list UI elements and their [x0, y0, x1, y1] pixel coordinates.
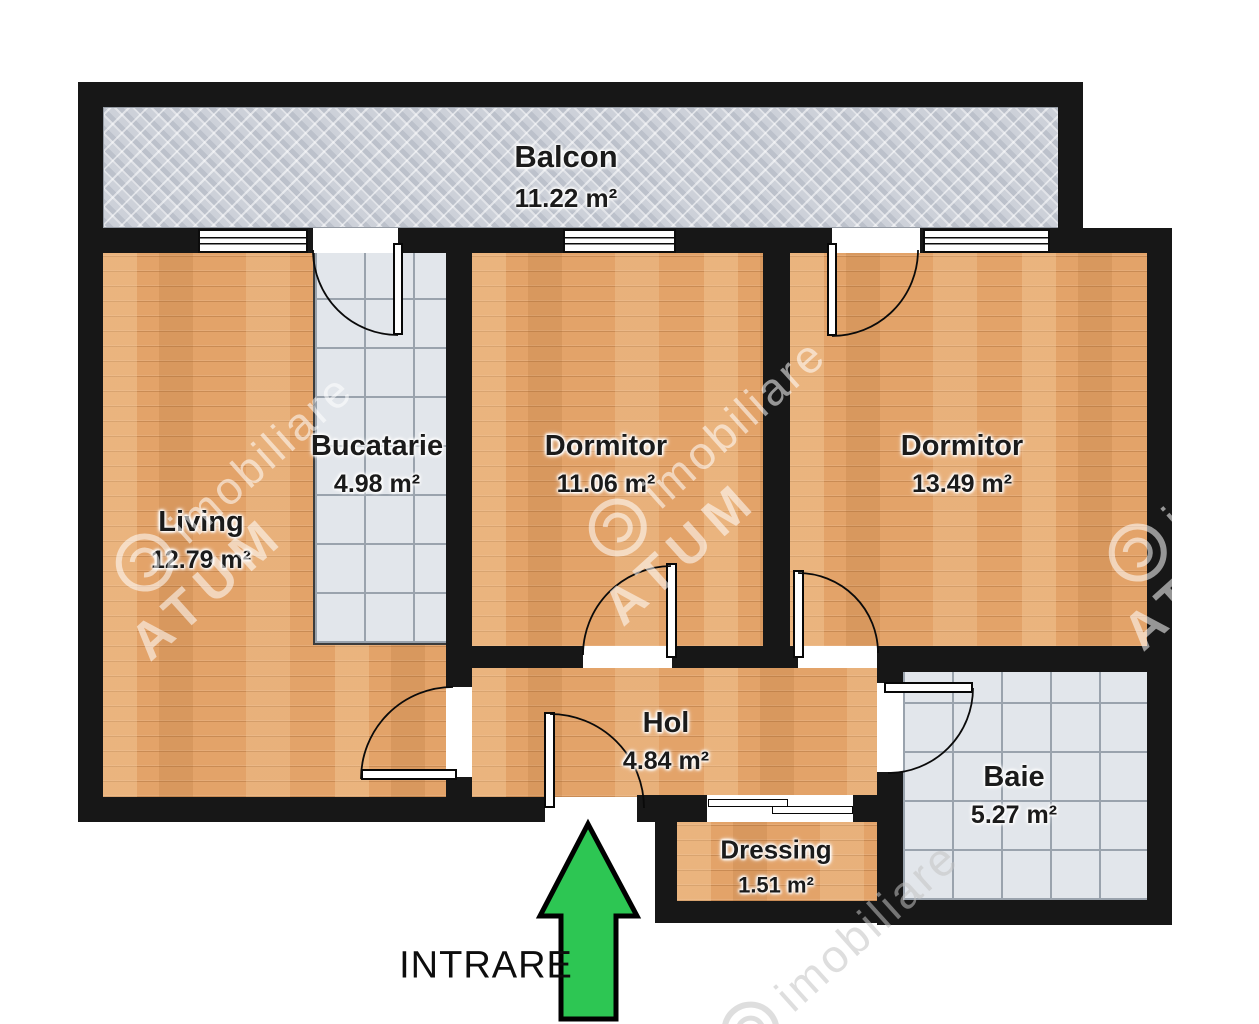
room-name: Dressing [720, 834, 831, 867]
room-name: Dormitor [901, 428, 1023, 464]
bathroom-door-opening [877, 683, 903, 772]
kitchen-balcony-door-opening [313, 228, 398, 253]
kitchen-door-leaf [393, 243, 403, 335]
wall-bathroom-top [877, 646, 1147, 672]
room-label-baie: Baie 5.27 m² [971, 759, 1057, 832]
room-area: 13.49 m² [901, 469, 1023, 500]
bedroom1-window [563, 229, 676, 253]
wall-top [78, 82, 1083, 107]
room-label-dressing: Dressing 1.51 m² [720, 834, 831, 899]
room-area: 1.51 m² [720, 871, 831, 899]
room-name: Baie [971, 759, 1057, 795]
wall-left [78, 82, 103, 822]
room-area: 5.27 m² [971, 800, 1057, 831]
bedroom1-door-opening [583, 646, 672, 668]
room-label-balcon: Balcon 11.22 m² [514, 138, 617, 214]
entrance-door-leaf [544, 712, 555, 808]
entrance-arrow-icon [540, 824, 637, 1019]
bedroom2-balcony-door-leaf [827, 243, 837, 336]
entrance-door-opening [545, 797, 637, 822]
wall-bottom-main [78, 797, 545, 822]
room-name: Hol [623, 705, 709, 741]
room-label-hol: Hol 4.84 m² [623, 705, 709, 778]
living-door-leaf [361, 769, 457, 780]
bedroom2-door-leaf [793, 570, 804, 658]
living-hall-door-opening [446, 687, 472, 777]
wall-sliding-right [853, 795, 877, 822]
room-label-dormitor-2: Dormitor 13.49 m² [901, 428, 1023, 501]
room-area: 4.84 m² [623, 746, 709, 777]
dressing-sliding-panel-2 [772, 806, 853, 814]
room-name: Dormitor [545, 428, 667, 464]
bedroom2-balcony-door-opening [832, 228, 920, 253]
bedroom2-window [923, 229, 1050, 253]
living-window [198, 229, 308, 253]
room-name: Balcon [514, 138, 617, 177]
bathroom-door-leaf [884, 682, 973, 693]
floor-plan: Balcon 11.22 m² Living 12.79 m² Bucatari… [0, 0, 1259, 1024]
room-area: 11.22 m² [514, 182, 617, 215]
bedroom2-door-opening [798, 646, 877, 668]
wall-balcony-right [1058, 82, 1083, 252]
entrance-label: INTRARE [399, 945, 573, 988]
